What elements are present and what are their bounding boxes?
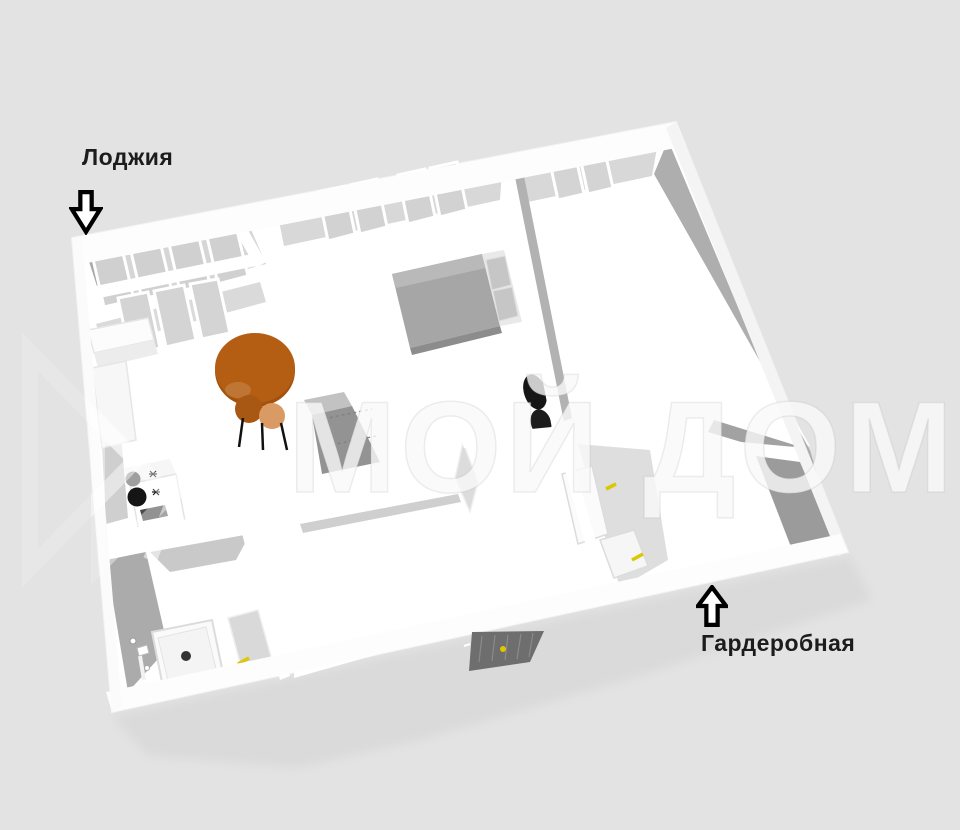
floor-plan-3d-render: МОЙ ДОМ	[0, 0, 960, 830]
floor-plan-canvas: МОЙ ДОМ Лоджия Гардеробная	[0, 0, 960, 830]
down-arrow-icon	[69, 189, 103, 235]
chair	[235, 395, 263, 423]
up-arrow-icon	[696, 585, 728, 627]
watermark-text: МОЙ ДОМ	[288, 374, 957, 520]
burner-black	[128, 488, 147, 507]
loggia-label: Лоджия	[82, 146, 173, 169]
shower-drain	[181, 651, 191, 661]
wardrobe-label: Гардеробная	[701, 632, 855, 655]
entrance-door-handle	[500, 646, 506, 652]
